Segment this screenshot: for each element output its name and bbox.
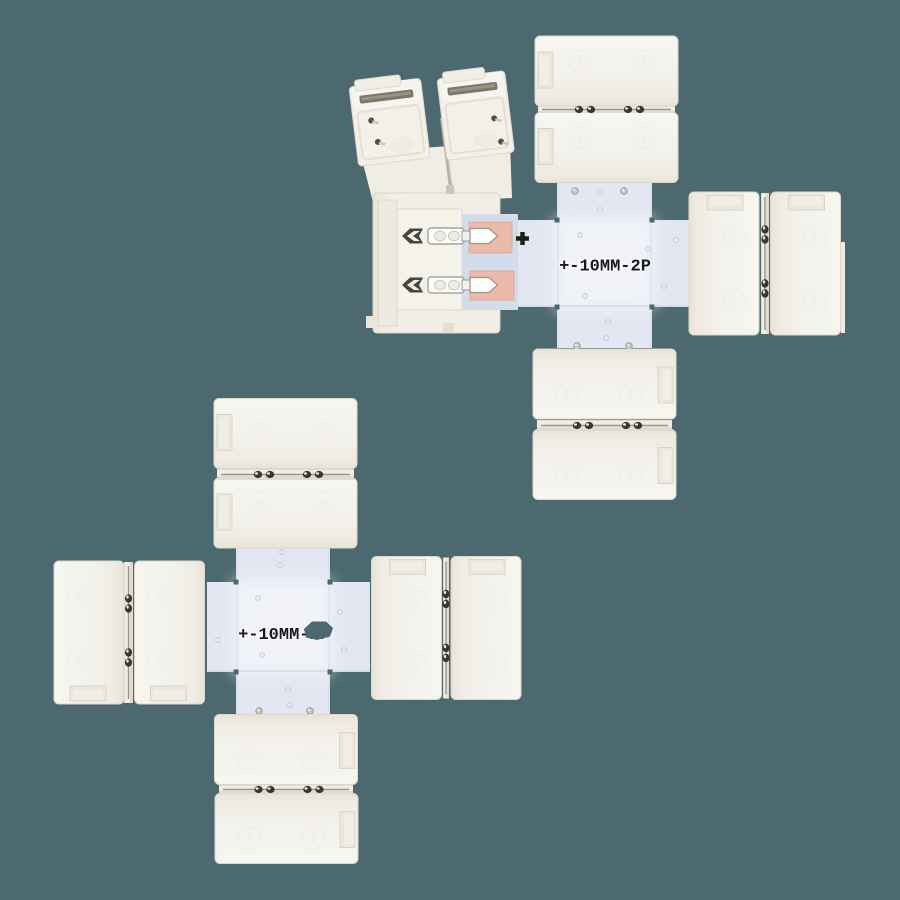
svg-text:+-10MM-2P: +-10MM-2P: [559, 258, 651, 277]
